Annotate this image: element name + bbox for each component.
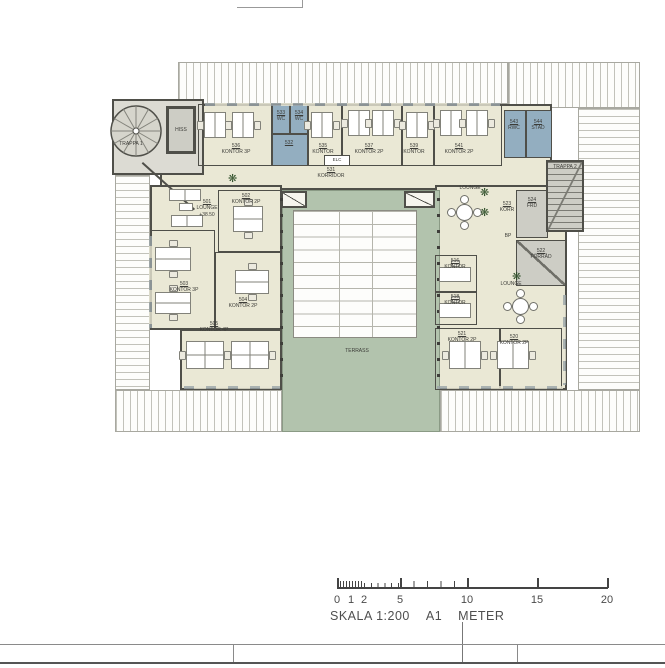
desk [372, 110, 394, 136]
label-504: 504KONTOR 2P [229, 297, 258, 310]
chair [529, 302, 538, 311]
roof-hatch-top-right [508, 62, 640, 108]
titleblock-vline-1 [233, 644, 234, 663]
label-544: 544STÄD [531, 119, 544, 132]
desk [186, 341, 224, 369]
scale-caption: SKALA 1:200A1METER [330, 609, 520, 623]
round-table [512, 298, 529, 315]
scale-major-tick [337, 578, 339, 588]
roof-hatch-bottom-right [440, 390, 640, 432]
chair [460, 221, 469, 230]
roof-hatch-right [578, 108, 640, 390]
canopy-west [281, 191, 307, 208]
room-522-forrad [516, 240, 566, 286]
label-541: 541KONTOR 2P [445, 143, 474, 156]
desk [204, 112, 226, 138]
chair [503, 302, 512, 311]
scale-major-tick [537, 578, 539, 588]
label-539: 539KONTOR [403, 143, 424, 156]
label-505: 505KONTOR 4P [200, 321, 229, 334]
label-trappa1: TRAPPA 1 [119, 141, 143, 147]
label-501: 501LOUNGE+38.50 [196, 199, 217, 218]
roof-hatch-left [115, 175, 150, 390]
roof-hatch-bottom-left [115, 390, 282, 432]
label-502: 502KONTOR 2P [232, 193, 261, 206]
plant-icon: ❋ [480, 188, 489, 199]
label-elc: ELC [333, 157, 342, 163]
scale-tick-label: 1 [348, 594, 354, 606]
label-korridor: 531KORRIDOR [318, 167, 345, 180]
scale-unit: METER [458, 609, 504, 623]
label-terrass: TERRASS [345, 348, 369, 354]
desk [231, 341, 269, 369]
scale-tick-label: 2 [361, 594, 367, 606]
roof-hatch-top [178, 62, 508, 104]
label-521: 521KONTOR 2P [448, 331, 477, 344]
scale-tick-label: 5 [397, 594, 403, 606]
scale-text: SKALA 1:200 [330, 609, 410, 623]
desk [155, 292, 191, 314]
wc-wall-h [272, 133, 308, 135]
window-strip-southeast [437, 386, 563, 389]
label-536: 536KONTOR 3P [222, 143, 251, 156]
window-strip-east [563, 295, 566, 385]
plant-icon: ❋ [228, 174, 237, 185]
chair [447, 208, 456, 217]
scale-major-tick [607, 578, 609, 588]
canopy-east [404, 191, 435, 208]
label-lounge-ne: LOUNGE [459, 185, 480, 191]
round-table-group [502, 288, 538, 324]
window-strip-west [149, 236, 152, 328]
label-hiss: HISS [175, 127, 187, 133]
coffee-table [179, 203, 193, 211]
label-bp: BP [505, 233, 512, 239]
window-strip-north [205, 103, 500, 106]
skylight-grid [293, 210, 417, 338]
label-503: 503KONTOR 3P [170, 281, 199, 294]
round-table [456, 204, 473, 221]
label-533: 533WC [277, 110, 285, 123]
desk [466, 110, 488, 136]
round-table-group [446, 194, 482, 230]
desk [233, 206, 263, 232]
scale-major-tick [467, 578, 469, 588]
scale-tick-label: 10 [461, 594, 473, 606]
spiral-stair-trappa1 [108, 103, 164, 159]
label-534: 534WC [295, 110, 303, 123]
room-543-rwc [504, 110, 526, 158]
desk [449, 341, 481, 369]
frame-mark-vertical [302, 0, 303, 8]
scale-tick-label: 20 [601, 594, 613, 606]
floor-plan-drawing: ❋ ❋ ❋ ❋ TRAPPA 1 HISS 536KONTOR 3P 533WC… [0, 0, 665, 668]
scale-major-tick [400, 578, 402, 588]
plant-icon: ❋ [480, 208, 489, 219]
room-544-stad [526, 110, 552, 158]
label-trappa2: TRAPPA 2 [553, 164, 577, 170]
scale-half-ticks [364, 583, 401, 588]
desk [406, 112, 428, 138]
scale-tick-label: 15 [531, 594, 543, 606]
room-503 [150, 230, 215, 330]
chair [516, 289, 525, 298]
column-row-west [280, 198, 283, 384]
frame-mark-horizontal [237, 7, 303, 8]
desk [311, 112, 333, 138]
titleblock-bottom-line [0, 662, 665, 664]
label-535: 535KONTOR [312, 143, 333, 156]
desk [232, 112, 254, 138]
titleblock-top-line [0, 644, 665, 645]
titleblock-vline-center [462, 622, 463, 663]
window-strip-southwest [184, 386, 280, 389]
label-522: 522FÖRRÅD [530, 248, 551, 261]
label-537: 537KONTOR 2P [355, 143, 384, 156]
stair-trappa2 [546, 160, 584, 232]
label-543: 543RWC [508, 119, 520, 132]
label-532: 532 [285, 140, 293, 146]
label-516: 516KONTOR [444, 258, 465, 271]
label-520: 520KONTOR 2P [500, 334, 529, 347]
label-523: 523KORR [500, 201, 514, 214]
titleblock-vline-2 [517, 644, 518, 663]
column-row-east [437, 198, 440, 384]
desk [155, 247, 191, 271]
chair [460, 195, 469, 204]
sheet-size: A1 [426, 609, 442, 623]
scale-tick-label: 0 [334, 594, 340, 606]
chair [516, 315, 525, 324]
scale-fine-ticks [337, 581, 364, 588]
label-lounge-se: LOUNGE [500, 281, 521, 287]
desk [235, 270, 269, 294]
label-518: 518KONTOR [444, 294, 465, 307]
wc-wall-v [289, 104, 291, 134]
label-524: 524FRD [527, 197, 537, 210]
scale-meter-ticks [400, 581, 468, 588]
